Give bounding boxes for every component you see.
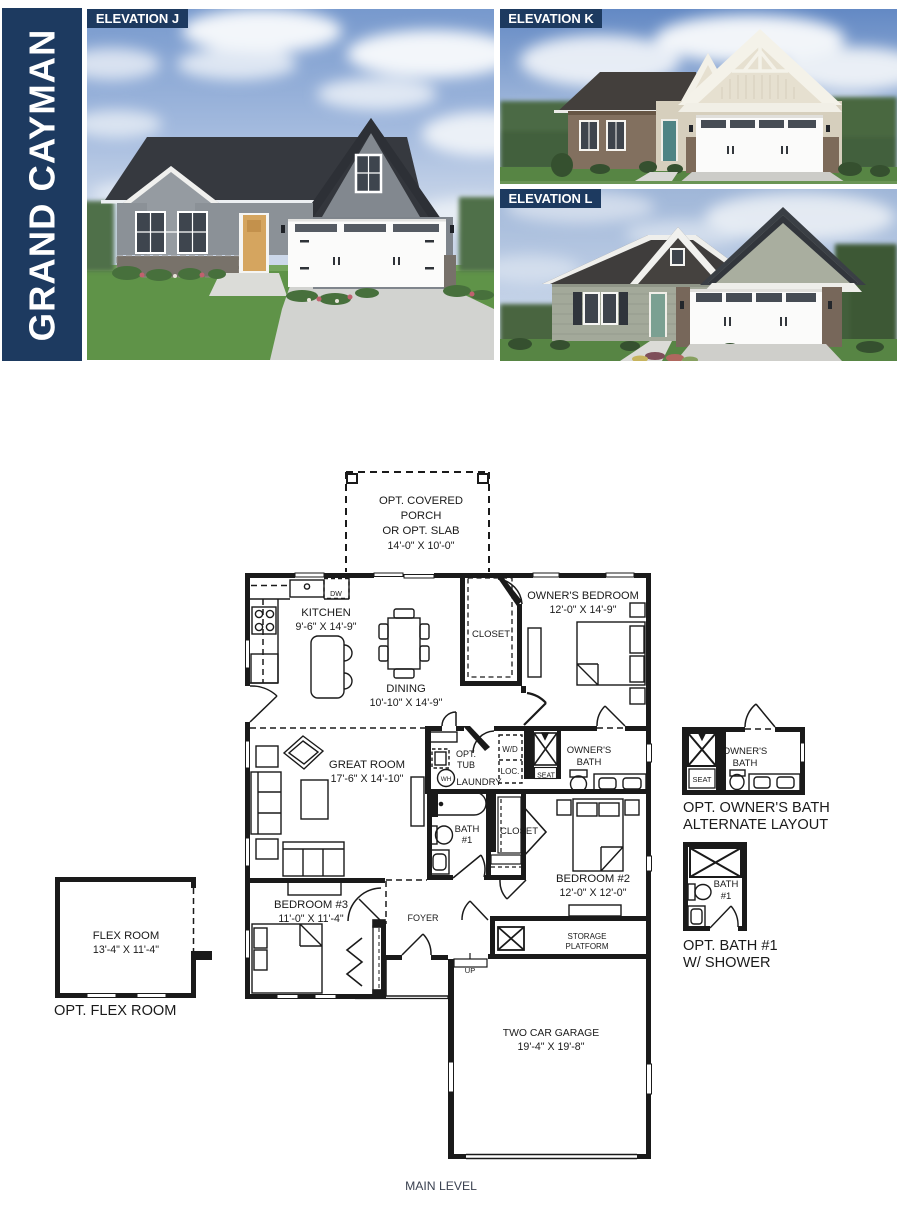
svg-text:GREAT ROOM: GREAT ROOM bbox=[329, 759, 405, 771]
svg-text:DINING: DINING bbox=[386, 683, 426, 695]
svg-text:OWNER'S BEDROOM: OWNER'S BEDROOM bbox=[527, 590, 639, 602]
svg-text:OWNER'S: OWNER'S bbox=[567, 745, 612, 756]
svg-text:12'-0" X 14'-9": 12'-0" X 14'-9" bbox=[550, 604, 617, 616]
svg-text:17'-6" X 14'-10": 17'-6" X 14'-10" bbox=[331, 773, 404, 785]
svg-text:TUB: TUB bbox=[457, 760, 475, 770]
svg-text:13'-4" X 11'-4": 13'-4" X 11'-4" bbox=[93, 944, 159, 956]
svg-text:OPT.: OPT. bbox=[456, 749, 476, 759]
svg-text:#1: #1 bbox=[462, 835, 473, 846]
svg-text:FOYER: FOYER bbox=[407, 913, 439, 923]
svg-text:OPT. FLEX ROOM: OPT. FLEX ROOM bbox=[54, 1003, 176, 1019]
svg-text:PORCH: PORCH bbox=[401, 510, 442, 522]
svg-text:W/ SHOWER: W/ SHOWER bbox=[683, 955, 771, 971]
svg-text:BATH: BATH bbox=[577, 757, 602, 768]
svg-text:BEDROOM #2: BEDROOM #2 bbox=[556, 873, 630, 885]
svg-text:OPT. COVERED: OPT. COVERED bbox=[379, 495, 463, 507]
svg-text:STORAGE: STORAGE bbox=[568, 932, 607, 941]
svg-text:BEDROOM #3: BEDROOM #3 bbox=[274, 899, 348, 911]
svg-text:SEAT: SEAT bbox=[692, 775, 711, 784]
svg-text:LAUNDRY: LAUNDRY bbox=[456, 777, 502, 788]
svg-text:DW: DW bbox=[330, 591, 342, 598]
svg-text:OR OPT. SLAB: OR OPT. SLAB bbox=[382, 525, 459, 537]
svg-text:CLOSET: CLOSET bbox=[500, 826, 538, 837]
svg-text:BATH: BATH bbox=[714, 879, 739, 890]
svg-text:#1: #1 bbox=[721, 891, 732, 902]
svg-text:19'-4" X 19'-8": 19'-4" X 19'-8" bbox=[518, 1041, 585, 1053]
svg-text:11'-0" X 11'-4": 11'-0" X 11'-4" bbox=[278, 913, 344, 925]
svg-text:PLATFORM: PLATFORM bbox=[566, 942, 609, 951]
svg-text:LOC.: LOC. bbox=[501, 767, 520, 776]
svg-text:10'-10" X 14'-9": 10'-10" X 14'-9" bbox=[370, 697, 443, 709]
svg-text:ALTERNATE LAYOUT: ALTERNATE LAYOUT bbox=[683, 817, 828, 833]
svg-text:W/D: W/D bbox=[502, 745, 518, 754]
svg-text:BATH: BATH bbox=[733, 758, 758, 769]
svg-text:12'-0" X 12'-0": 12'-0" X 12'-0" bbox=[560, 887, 627, 899]
svg-text:FLEX ROOM: FLEX ROOM bbox=[93, 930, 160, 942]
svg-text:OPT. BATH #1: OPT. BATH #1 bbox=[683, 938, 778, 954]
svg-text:OWNER'S: OWNER'S bbox=[723, 746, 768, 757]
svg-text:WH: WH bbox=[441, 776, 452, 783]
svg-text:UP: UP bbox=[465, 966, 475, 975]
svg-text:SEAT: SEAT bbox=[537, 773, 555, 780]
svg-text:14'-0" X 10'-0": 14'-0" X 10'-0" bbox=[388, 540, 455, 552]
svg-text:OPT. OWNER'S BATH: OPT. OWNER'S BATH bbox=[683, 800, 830, 816]
svg-text:MAIN LEVEL: MAIN LEVEL bbox=[405, 1179, 477, 1193]
svg-text:BATH: BATH bbox=[455, 824, 480, 835]
svg-text:TWO CAR GARAGE: TWO CAR GARAGE bbox=[503, 1028, 599, 1039]
svg-text:CLOSET: CLOSET bbox=[472, 629, 510, 640]
svg-text:9'-6" X 14'-9": 9'-6" X 14'-9" bbox=[295, 621, 356, 633]
svg-text:KITCHEN: KITCHEN bbox=[301, 607, 351, 619]
